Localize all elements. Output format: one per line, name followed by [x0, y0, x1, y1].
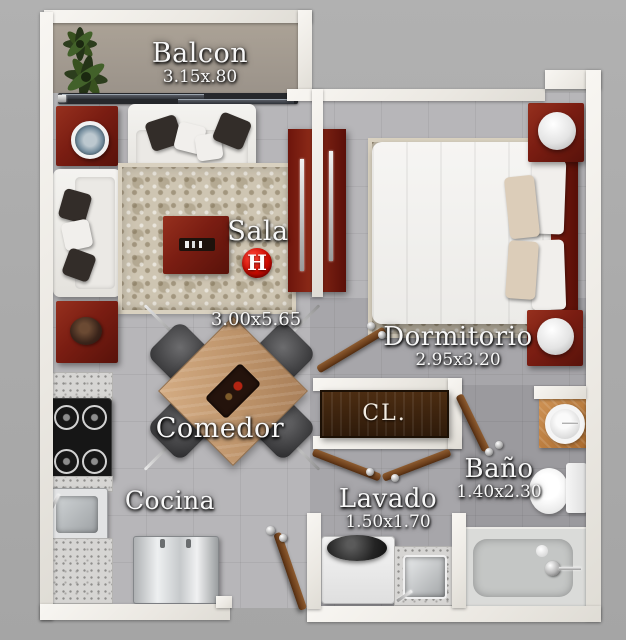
wall [307, 513, 321, 609]
fridge-handle [186, 539, 191, 548]
door-knob [266, 526, 275, 535]
room-dims: 2.95x3.20 [372, 352, 544, 370]
wall [312, 89, 323, 297]
soap-dish [536, 545, 548, 557]
tub-spout [559, 567, 581, 570]
room-label-comedor: Comedor [140, 415, 300, 443]
room-label-lavado: Lavado 1.50x1.70 [326, 486, 450, 532]
room-name: Balcon [115, 40, 285, 68]
door-knob [279, 534, 287, 542]
tv-screen [329, 151, 333, 261]
logo-letter: H [247, 250, 267, 275]
stove-burner [82, 405, 107, 430]
door-knob [495, 441, 503, 449]
sliding-door-track [58, 95, 66, 102]
sliding-door [58, 93, 298, 104]
sofa [53, 169, 121, 297]
room-name: Sala [218, 218, 298, 246]
floor-plan: CL. Balcon 3.15x.80 Sala H 3.00x5.65 Dor… [0, 0, 626, 640]
logo-badge: H [242, 248, 272, 278]
sink-basin [56, 496, 98, 533]
room-dims: 1.50x1.70 [326, 514, 450, 532]
room-label-sala: Sala [218, 218, 298, 246]
room-dims-sala: 3.00x5.65 [196, 310, 316, 330]
kitchen-counter [45, 538, 113, 604]
pillow [505, 240, 539, 300]
wall [452, 513, 466, 608]
decor-bowl [71, 121, 109, 159]
stove-burner [54, 405, 79, 430]
faucet-icon [562, 422, 578, 424]
pillow [60, 218, 93, 251]
door-knob [391, 474, 399, 482]
wall [298, 10, 312, 94]
stove-burner [54, 449, 79, 474]
wall [40, 604, 230, 620]
room-label-dormitorio: Dormitorio 2.95x3.20 [372, 324, 544, 370]
serving-tray [205, 363, 262, 420]
fridge-handle [160, 539, 165, 548]
room-name: Cocina [110, 488, 230, 514]
tv-screen [300, 159, 304, 271]
bathroom-sink [545, 404, 585, 444]
room-label-bano: Baño 1.40x2.30 [447, 456, 551, 502]
room-dims: 1.40x2.30 [447, 484, 551, 502]
decor-plate [70, 317, 102, 345]
wall [44, 10, 312, 23]
side-table [56, 301, 118, 363]
wall [586, 70, 601, 620]
room-label-closet: CL. [322, 401, 447, 426]
pillow [504, 175, 540, 240]
room-label-cocina: Cocina [110, 488, 230, 514]
toilet-tank [566, 463, 587, 513]
door-knob [366, 468, 374, 476]
stove [48, 398, 112, 480]
lamp-icon [538, 112, 576, 150]
room-name: Baño [447, 456, 551, 483]
bathtub [461, 527, 592, 611]
washer-lid [327, 535, 387, 561]
tub-faucet-icon [545, 561, 560, 576]
utility-sink [394, 546, 454, 606]
stove-burner [82, 449, 107, 474]
room-name: Lavado [326, 486, 450, 513]
wall [307, 606, 601, 622]
wall [216, 596, 232, 608]
room-name: Comedor [140, 415, 300, 443]
wall [534, 386, 586, 399]
plant-icon [44, 22, 126, 102]
wall [448, 378, 462, 449]
washing-machine [321, 536, 395, 604]
room-dims: 3.00x5.65 [196, 311, 316, 330]
room-name: Dormitorio [372, 324, 544, 351]
kitchen-sink [48, 488, 108, 542]
room-label-balcon: Balcon 3.15x.80 [115, 40, 285, 87]
refrigerator [133, 536, 219, 604]
wall [40, 12, 53, 620]
wall [287, 89, 545, 101]
remote-controls [179, 238, 215, 251]
closet-box: CL. [320, 390, 449, 438]
room-dims: 3.15x.80 [115, 69, 285, 87]
